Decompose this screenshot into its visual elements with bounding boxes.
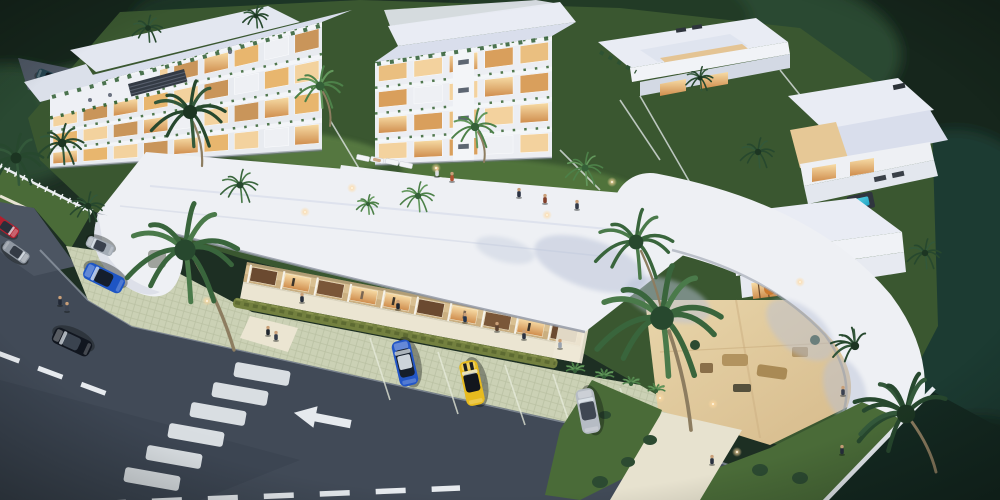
aerial-render-residential-complex xyxy=(0,0,1000,500)
render-canvas xyxy=(0,0,1000,500)
vignette xyxy=(0,0,1000,500)
